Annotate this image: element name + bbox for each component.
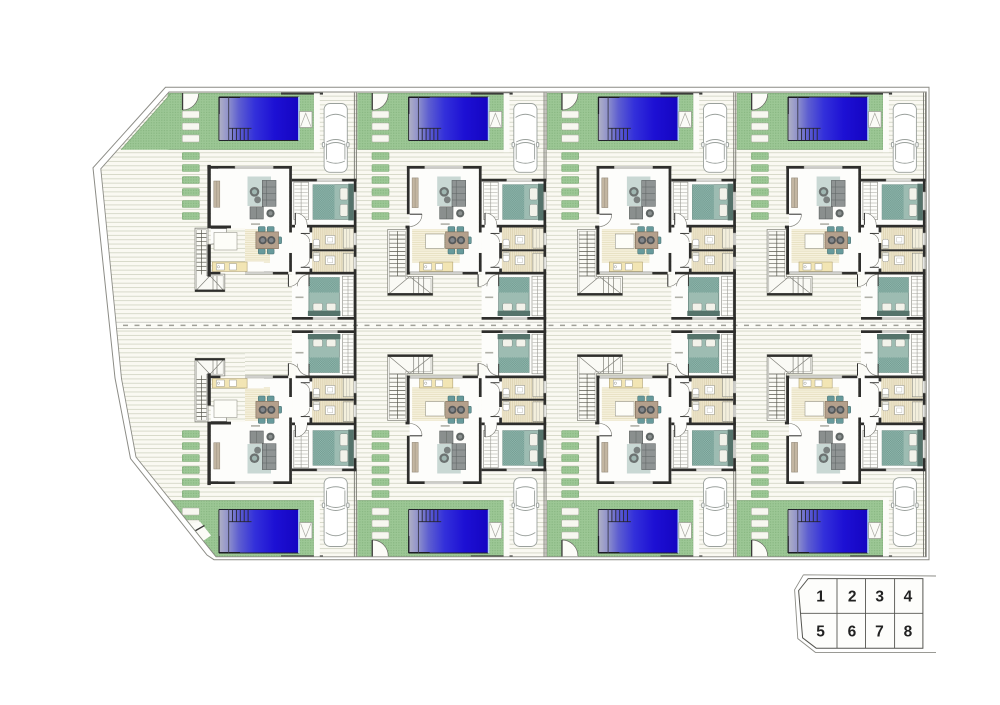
svg-text:7: 7 — [875, 624, 884, 641]
svg-text:4: 4 — [904, 589, 913, 606]
svg-text:8: 8 — [904, 624, 913, 641]
svg-text:2: 2 — [848, 589, 857, 606]
svg-text:3: 3 — [875, 589, 884, 606]
svg-text:6: 6 — [848, 624, 857, 641]
svg-text:5: 5 — [816, 624, 825, 641]
svg-text:1: 1 — [816, 589, 825, 606]
